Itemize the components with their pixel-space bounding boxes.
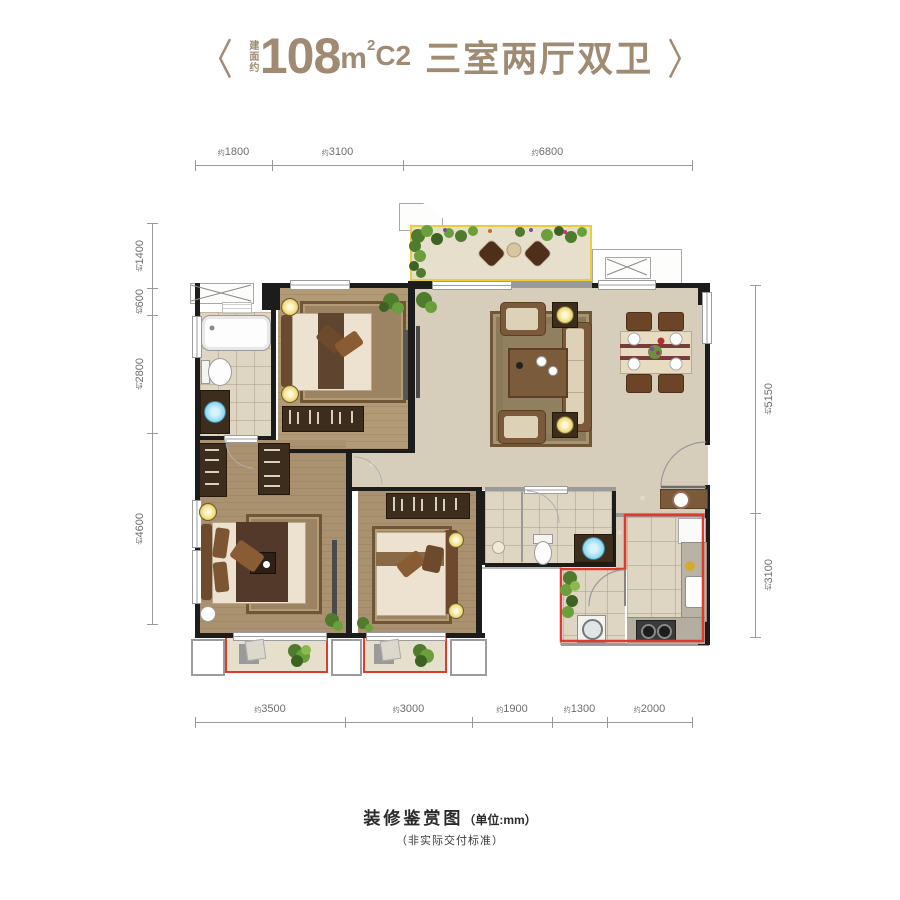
dim-label: 约2000	[607, 703, 692, 715]
title-unit: m2	[340, 37, 375, 76]
window	[290, 280, 350, 290]
title-unit-sup: 2	[367, 37, 375, 54]
bath-stool	[492, 541, 505, 554]
dining-chair	[626, 312, 652, 331]
tick	[750, 637, 761, 638]
hallway	[352, 453, 418, 490]
wall	[408, 287, 415, 453]
caption-subnote: （非实际交付标准）	[0, 832, 900, 848]
table-runner	[620, 344, 690, 348]
floor-lamp	[556, 416, 574, 434]
armchair-cushion	[506, 308, 538, 330]
tick	[147, 223, 158, 224]
dim-label: 约6800	[403, 146, 692, 158]
tick	[147, 624, 158, 625]
dining-chair	[626, 374, 652, 393]
tableware	[254, 556, 261, 563]
fridge	[678, 518, 706, 544]
ruler-line	[195, 165, 693, 166]
sofa-cushions	[566, 328, 584, 424]
tick	[403, 160, 404, 171]
dim-label: 约3100	[272, 146, 403, 158]
left-angle-bracket: 〈	[185, 25, 247, 86]
ruler-top: 约1800 约3100 约6800	[195, 146, 693, 166]
dim-label: 约3100	[761, 513, 777, 637]
bed-headboard	[201, 524, 212, 600]
shower-partition	[521, 492, 523, 562]
kitchen-sink	[685, 576, 704, 608]
tv	[332, 540, 337, 618]
caption: 装修鉴赏图（单位:mm） （非实际交付标准）	[0, 804, 900, 848]
title-type-code: C2	[375, 40, 411, 72]
wall	[485, 563, 616, 567]
tick	[272, 160, 273, 171]
wall	[346, 453, 352, 636]
door-opening	[524, 486, 568, 494]
dim-label: 约4600	[132, 433, 148, 625]
exterior-line	[560, 567, 562, 645]
tick	[692, 717, 693, 728]
tick	[750, 513, 761, 514]
wall	[271, 308, 276, 440]
sink	[204, 401, 226, 423]
tick	[147, 315, 158, 316]
window	[598, 280, 656, 290]
caption-main: 装修鉴赏图（单位:mm）	[0, 804, 900, 829]
door-opening	[224, 435, 258, 443]
dim-label: 约1900	[472, 703, 552, 715]
caption-unit-note: （单位:mm）	[463, 813, 536, 827]
hall-strip	[616, 517, 627, 569]
wardrobe	[199, 443, 227, 497]
balcony-chair	[380, 639, 402, 661]
bed	[376, 532, 446, 616]
bed-blanket	[318, 313, 344, 389]
bedside-lamp	[281, 298, 299, 316]
washer-drum	[582, 619, 603, 640]
floorplan-poster: 〈 建面约 108 m2 C2 三室两厅双卫 〉 约1800 约3100 约68…	[0, 0, 900, 900]
floor-lamp	[556, 306, 574, 324]
toilet	[208, 358, 232, 386]
bedside-lamp	[448, 532, 464, 548]
dim-label: 约1300	[552, 703, 607, 715]
tv	[404, 330, 408, 400]
tick	[345, 717, 346, 728]
tv	[416, 326, 420, 398]
ruler-line	[755, 285, 756, 638]
decor-bowl	[672, 491, 690, 509]
window	[702, 292, 712, 344]
balcony-door	[366, 632, 446, 641]
bed-headboard	[281, 315, 292, 387]
tick	[552, 717, 553, 728]
ruler-left: 约1400 约600 约2800 约4600	[132, 223, 152, 625]
dim-label: 约5150	[761, 285, 777, 513]
title-room-config: 三室两厅双卫	[425, 30, 653, 82]
ruler-bottom: 约3500 约3000 约1900 约1300 约2000	[195, 703, 693, 723]
dim-label: 约2800	[132, 315, 148, 433]
tick	[472, 717, 473, 728]
dim-label: 约600	[132, 288, 148, 315]
ruler-line	[195, 722, 693, 723]
bedside-lamp	[281, 385, 299, 403]
tick	[195, 717, 196, 728]
bedside-lamp	[200, 606, 216, 622]
tick	[147, 433, 158, 434]
tableware	[548, 366, 558, 376]
bathtub	[201, 315, 271, 351]
bookshelf	[386, 493, 470, 519]
bedside-lamp	[448, 603, 464, 619]
tick	[147, 288, 158, 289]
title-prefix: 建面约	[247, 40, 257, 73]
balcony-door	[233, 632, 327, 641]
ruler-line	[152, 223, 153, 625]
dining-chair	[658, 312, 684, 331]
ruler-right: 约5150 约3100	[755, 285, 777, 638]
wardrobe	[258, 443, 290, 495]
bay-window	[191, 639, 225, 676]
bay-window	[450, 639, 487, 676]
bay-window	[331, 639, 362, 676]
tick	[692, 160, 693, 171]
window	[432, 281, 512, 290]
tableware	[516, 362, 523, 369]
exterior-line	[482, 567, 562, 569]
tableware	[263, 561, 270, 568]
coffee-table	[508, 348, 568, 398]
dining-table	[620, 331, 692, 374]
dim-label: 约1800	[195, 146, 272, 158]
dim-label: 约3500	[195, 703, 345, 715]
burner	[641, 624, 656, 639]
terrace	[410, 225, 592, 281]
tick	[750, 285, 761, 286]
bedside-lamp	[199, 503, 217, 521]
bed-blanket	[376, 552, 444, 566]
toilet	[534, 541, 552, 565]
tick	[607, 717, 608, 728]
burner	[657, 624, 672, 639]
wall	[616, 513, 705, 517]
wall	[480, 491, 485, 565]
right-angle-bracket: 〉	[653, 25, 715, 86]
tableware	[536, 356, 547, 367]
bookshelf	[282, 406, 364, 432]
steps	[222, 302, 252, 314]
dim-label: 约1400	[132, 223, 148, 288]
ac-unit-box	[605, 257, 651, 279]
wall	[510, 281, 592, 288]
balcony-chair	[245, 639, 267, 661]
dining-chair	[658, 374, 684, 393]
title-area-number: 108	[260, 31, 340, 81]
sink	[582, 537, 605, 560]
page-title: 〈 建面约 108 m2 C2 三室两厅双卫 〉	[0, 30, 900, 82]
table-runner	[620, 356, 690, 360]
dim-label: 约3000	[345, 703, 472, 715]
armchair-cushion	[504, 416, 538, 438]
tick	[195, 160, 196, 171]
wall	[352, 487, 478, 491]
